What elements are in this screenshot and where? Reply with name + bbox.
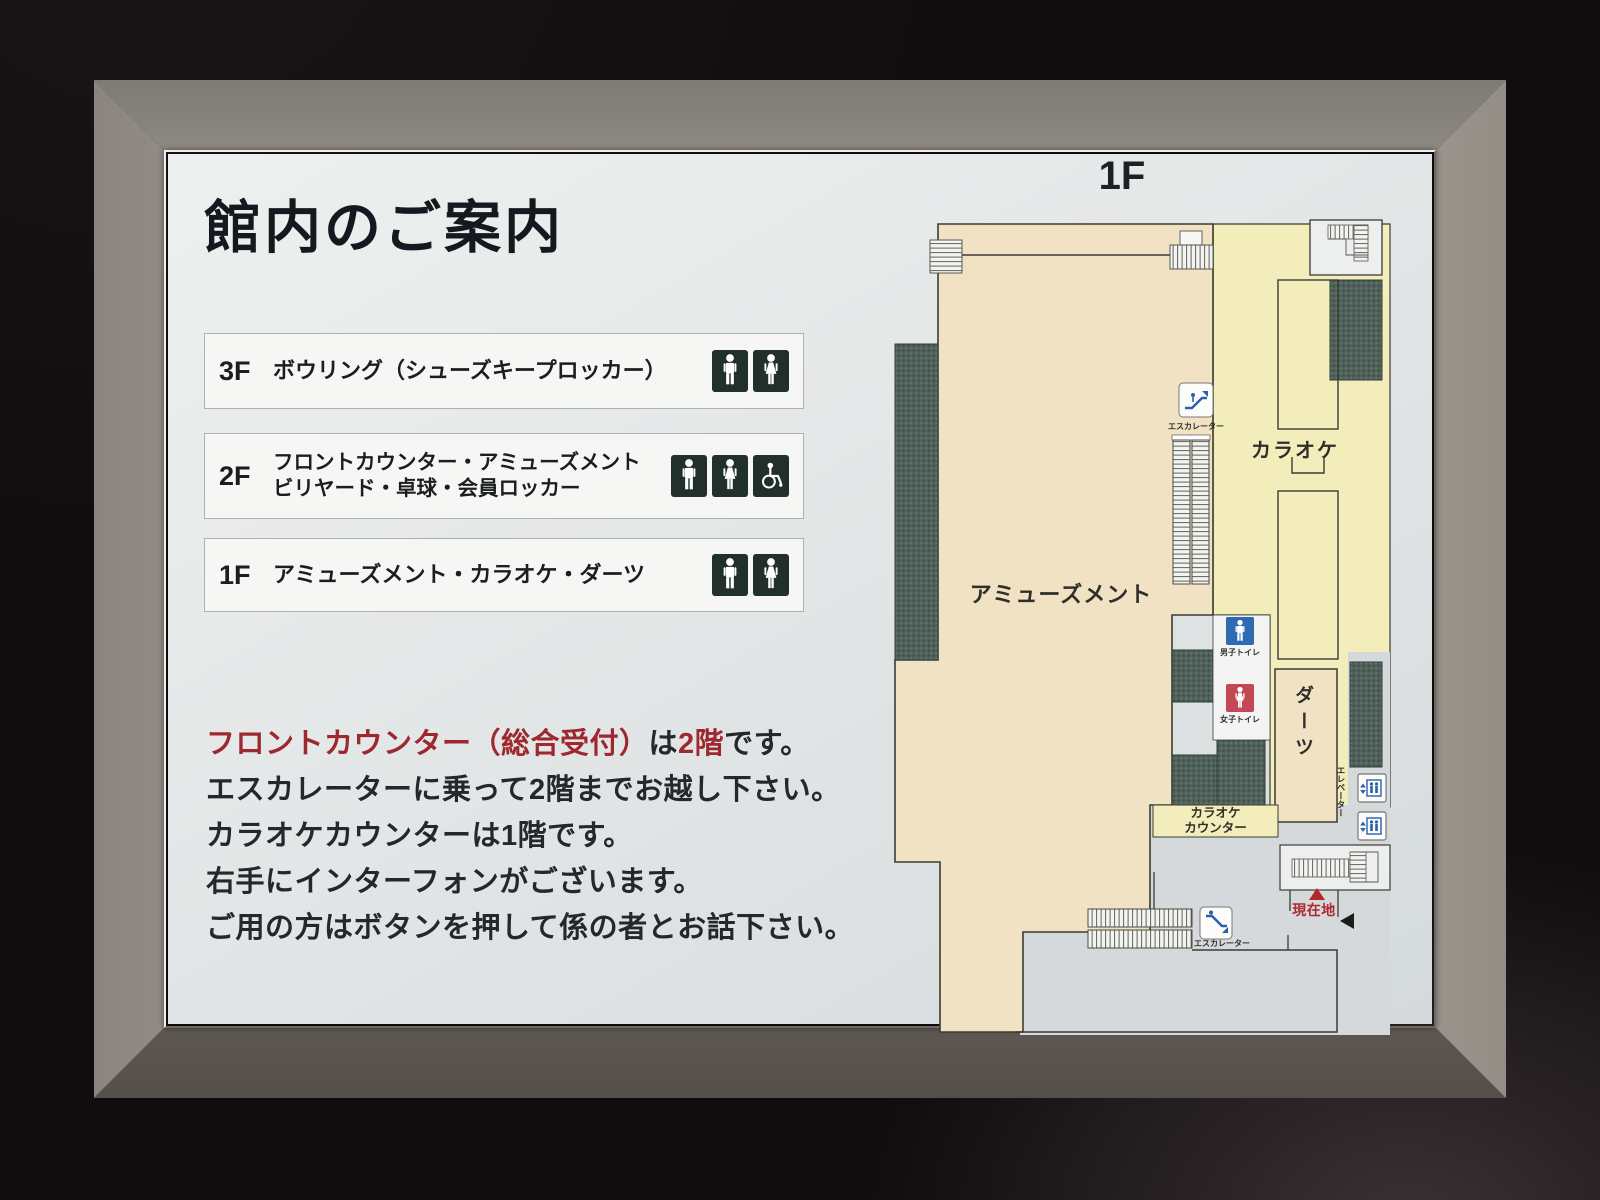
stairs-top-left bbox=[930, 240, 962, 273]
floor-description: ボウリング（シューズキープロッカー） bbox=[273, 357, 712, 385]
male-restroom-icon bbox=[671, 455, 707, 497]
stairs-landing-top-mid bbox=[1180, 231, 1202, 245]
floor-map-drawing bbox=[880, 207, 1395, 1047]
floor-number: 3F bbox=[219, 356, 273, 387]
notice-line-3: カラオケカウンターは1階です。 bbox=[206, 813, 854, 859]
escalator-icon-lower bbox=[1200, 907, 1232, 939]
map-label-womens-toilet: 女子トイレ bbox=[1212, 714, 1268, 725]
floor-description-line2: ビリヤード・卓球・会員ロッカー bbox=[273, 476, 671, 502]
womens-toilet-icon bbox=[1226, 684, 1254, 712]
wheelchair-icon bbox=[753, 455, 789, 497]
restroom-icons bbox=[712, 554, 789, 596]
map-label-escalator-upper: エスカレーター bbox=[1157, 421, 1235, 432]
elevator-icon-2 bbox=[1358, 812, 1386, 840]
map-label-amusement: アミューズメント bbox=[966, 577, 1156, 609]
floor-map: アミューズメント カラオケ ダーツ カラオケ カウンター エスカレーター エスカ… bbox=[880, 207, 1395, 1047]
map-label-escalator-lower: エスカレーター bbox=[1183, 938, 1261, 949]
wall-block-l-shape bbox=[1172, 755, 1217, 805]
notice-line-1: フロントカウンター（総合受付）は2階です。 bbox=[206, 721, 854, 767]
metal-frame: 館内のご案内 3F ボウリング（シューズキープロッカー） 2F フロントカウンタ… bbox=[94, 80, 1506, 1098]
mens-toilet-icon bbox=[1226, 617, 1254, 645]
male-restroom-icon bbox=[712, 554, 748, 596]
floor-description-line1: フロントカウンター・アミューズメント bbox=[273, 450, 671, 476]
sign-face: 館内のご案内 3F ボウリング（シューズキープロッカー） 2F フロントカウンタ… bbox=[168, 154, 1432, 1024]
notice-text: フロントカウンター（総合受付）は2階です。 エスカレーターに乗って2階までお越し… bbox=[206, 721, 854, 951]
map-label-karaoke: カラオケ bbox=[1236, 434, 1354, 463]
wall-block-left-strip bbox=[895, 344, 938, 660]
map-floor-title: 1F bbox=[1062, 154, 1182, 199]
map-label-karaoke-counter-line1: カラオケ bbox=[1155, 806, 1276, 821]
notice-front-counter: フロントカウンター（総合受付） bbox=[206, 728, 649, 760]
elevator-icon-1 bbox=[1358, 774, 1386, 802]
map-label-elevator: エレベーター bbox=[1335, 766, 1347, 874]
map-label-darts: ダーツ bbox=[1289, 685, 1316, 817]
map-label-mens-toilet: 男子トイレ bbox=[1212, 647, 1268, 658]
floor-description: フロントカウンター・アミューズメント ビリヤード・卓球・会員ロッカー bbox=[273, 450, 671, 501]
page-title: 館内のご案内 bbox=[204, 182, 564, 264]
notice-line-2: エスカレーターに乗って2階までお越し下さい。 bbox=[206, 767, 854, 813]
wall-block-near-toilets bbox=[1172, 650, 1217, 702]
floor-row-2f: 2F フロントカウンター・アミューズメント ビリヤード・卓球・会員ロッカー bbox=[204, 433, 804, 519]
female-restroom-icon bbox=[712, 455, 748, 497]
restroom-icons bbox=[712, 350, 789, 392]
notice-floor-2: 2階 bbox=[678, 728, 724, 760]
floor-description: アミューズメント・カラオケ・ダーツ bbox=[273, 561, 712, 589]
restroom-icons bbox=[671, 455, 789, 497]
floor-number: 1F bbox=[219, 560, 273, 591]
map-label-karaoke-counter-line2: カウンター bbox=[1155, 821, 1276, 836]
female-restroom-icon bbox=[753, 350, 789, 392]
escalator-icon-upper bbox=[1179, 383, 1213, 417]
floor-row-1f: 1F アミューズメント・カラオケ・ダーツ bbox=[204, 538, 804, 612]
notice-line-5: ご用の方はボタンを押して係の者とお話下さい。 bbox=[206, 905, 854, 951]
floor-number: 2F bbox=[219, 461, 273, 492]
stairs-top-mid bbox=[1170, 245, 1213, 269]
stairwell-top-right bbox=[1310, 220, 1382, 275]
notice-line-4: 右手にインターフォンがございます。 bbox=[206, 859, 854, 905]
floor-row-3f: 3F ボウリング（シューズキープロッカー） bbox=[204, 333, 804, 409]
male-restroom-icon bbox=[712, 350, 748, 392]
wall-block-mid-right bbox=[1350, 662, 1382, 767]
female-restroom-icon bbox=[753, 554, 789, 596]
notice-particle: は bbox=[649, 728, 679, 760]
notice-desu: です。 bbox=[724, 728, 810, 760]
map-label-current-location: 現在地 bbox=[1282, 900, 1346, 920]
